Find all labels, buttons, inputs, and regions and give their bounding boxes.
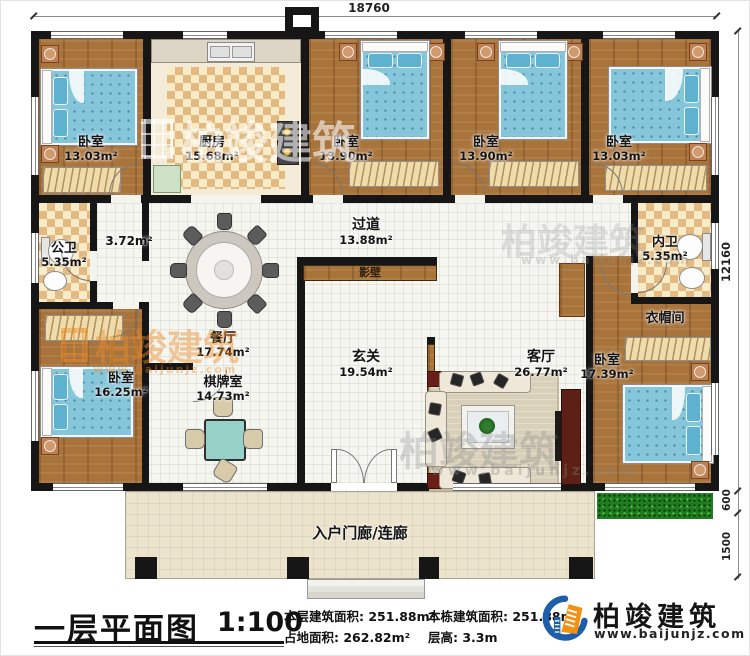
washbasin [43, 271, 67, 291]
entrance-steps [307, 579, 425, 599]
window [31, 97, 39, 175]
window [183, 483, 267, 491]
door-opening [113, 302, 139, 309]
pillow [53, 374, 68, 400]
room-name: 过道 [321, 217, 411, 234]
stove-burner [282, 127, 292, 137]
porch-pillar [287, 557, 309, 579]
room-area: 14.73m² [181, 390, 265, 404]
floor-plan-sheet: 18760 12160 600 1500 [0, 0, 750, 656]
watermark-url: www.baijunjz.com [431, 463, 638, 479]
room-area: 13.90m² [306, 150, 386, 164]
dimension-tick [713, 12, 720, 19]
label-screen-wall: 影壁 [303, 265, 437, 281]
stove-burner [282, 147, 292, 157]
chair [243, 429, 263, 449]
label-hall-area: 3.72m² [99, 234, 159, 248]
door-opening [593, 195, 623, 203]
room-name: 衣帽间 [623, 311, 707, 326]
title-block: 一层平面图 1:100 本层建筑面积: 251.88m² 占地面积: 262.8… [1, 601, 750, 656]
stat-floor-height: 层高: 3.3m [428, 627, 498, 648]
bed [623, 385, 713, 463]
cabinet [559, 263, 585, 317]
stat-label: 本栋建筑面积: [428, 609, 508, 624]
grass-strip [597, 493, 713, 519]
bed-headboard [700, 68, 710, 142]
window [53, 483, 123, 491]
wardrobe [45, 315, 123, 341]
bed-sheet [665, 68, 683, 101]
mahjong-table [204, 419, 246, 461]
window [325, 31, 397, 39]
bed [499, 41, 567, 139]
pillow [686, 393, 701, 422]
nightstand [691, 461, 709, 479]
watermark-url: www.baijunjz.com [521, 253, 692, 267]
entry-door-opening [331, 483, 397, 491]
room-area: 19.54m² [326, 366, 406, 380]
stat-value: 251.88m² [368, 609, 435, 624]
pillow [684, 107, 699, 135]
room-name: 玄关 [326, 349, 406, 366]
label-bedroom-top-left: 卧室 13.03m² [51, 135, 131, 164]
room-area: 13.90m² [446, 150, 526, 164]
label-public-bathroom: 公卫 5.35m² [35, 241, 93, 270]
window [711, 97, 719, 175]
dimension-line-right [738, 31, 739, 579]
stat-value: 262.82m² [343, 630, 410, 645]
stat-label: 层高: [428, 630, 458, 645]
window [465, 31, 537, 39]
label-porch: 入户门廊/连廊 [125, 525, 595, 543]
room-name: 入户门廊/连廊 [125, 525, 595, 543]
pillow [53, 77, 68, 105]
label-bedroom-top-right: 卧室 13.03m² [579, 135, 659, 164]
dining-table-center [214, 260, 234, 280]
cushion [428, 402, 442, 416]
window [51, 31, 123, 39]
label-cloakroom: 衣帽间 [623, 311, 707, 326]
nightstand [339, 43, 357, 61]
window [453, 483, 561, 491]
chair [217, 311, 232, 328]
brand-url: www.baijunjz.com [594, 626, 746, 641]
kitchen-sink [207, 42, 255, 62]
chair [170, 263, 187, 278]
bed-sheet [69, 70, 84, 103]
window [31, 371, 39, 441]
window [183, 31, 227, 39]
pillow [684, 75, 699, 103]
plant [479, 418, 495, 434]
stat-label: 占地面积: [284, 630, 339, 645]
label-chess-room: 棋牌室 14.73m² [181, 375, 265, 404]
bed-headboard [42, 368, 52, 436]
bed [361, 41, 429, 139]
chair [217, 213, 232, 230]
pillow [368, 53, 393, 68]
label-bedroom-top-3: 卧室 13.90m² [446, 135, 526, 164]
stat-footprint-area: 占地面积: 262.82m² [284, 627, 410, 648]
bed-headboard [42, 70, 52, 144]
bed-sheet [500, 69, 528, 85]
dimension-width-label: 18760 [321, 1, 417, 15]
stat-floor-area: 本层建筑面积: 251.88m² [284, 606, 435, 627]
chair [185, 429, 205, 449]
pillow [535, 53, 560, 68]
pillow [53, 404, 68, 430]
room-area: 17.74m² [183, 346, 263, 360]
bed-sheet [362, 69, 390, 85]
wardrobe [349, 161, 439, 187]
dimension-line-top [33, 16, 717, 17]
bed-headboard [500, 42, 566, 52]
tv [555, 411, 561, 461]
room-area: 13.03m² [51, 150, 131, 164]
nightstand [565, 43, 583, 61]
window [603, 31, 675, 39]
pillow [506, 53, 531, 68]
window [605, 483, 695, 491]
bed-headboard [362, 42, 428, 52]
dimension-porch-label: 1500 [721, 525, 733, 567]
room-area: 13.88m² [321, 234, 411, 248]
chair [262, 263, 279, 278]
toilet-tank [702, 233, 711, 261]
nightstand [41, 437, 59, 455]
brand-logo-icon [541, 592, 589, 648]
room-area: 17.39m² [565, 368, 649, 382]
label-kitchen: 厨房 15.68m² [172, 135, 252, 164]
porch-pillar [419, 557, 439, 579]
room-area: 13.03m² [579, 150, 659, 164]
room-area: 5.35m² [35, 256, 93, 270]
room-area: 16.25m² [79, 386, 163, 400]
pillow [397, 53, 422, 68]
bed-sheet [672, 386, 685, 420]
washbasin [679, 267, 705, 289]
door-opening [455, 195, 485, 203]
bed [609, 67, 711, 143]
nightstand [689, 43, 707, 61]
nightstand [689, 143, 707, 161]
bed [41, 69, 137, 145]
window [711, 223, 719, 269]
dimension-tick [734, 573, 741, 580]
screen-wall-cap [297, 257, 437, 265]
nightstand [691, 363, 709, 381]
window [711, 383, 719, 455]
room-area: 15.68m² [172, 150, 252, 164]
label-corridor: 过道 13.88m² [321, 217, 411, 247]
pillow [686, 426, 701, 455]
door-opening [313, 195, 343, 203]
nightstand [427, 43, 445, 61]
porch-pillar [135, 557, 157, 579]
room-area: 3.72m² [99, 234, 159, 248]
interior-wall [297, 257, 305, 483]
wardrobe [489, 161, 579, 187]
door-opening [631, 263, 638, 293]
porch-pillar [569, 557, 593, 579]
title-underline [34, 641, 284, 647]
interior-wall [142, 203, 149, 261]
door-opening [111, 195, 141, 203]
kitchen-tile [167, 67, 285, 189]
label-dining: 餐厅 17.74m² [183, 331, 263, 360]
pillow [53, 109, 68, 137]
nightstand [477, 43, 495, 61]
entry-door-leaf [391, 449, 397, 483]
dimension-height-label: 12160 [719, 226, 733, 298]
label-bedroom-right: 卧室 17.39m² [565, 353, 649, 382]
watermark-url: www.baijunjz.com [93, 363, 237, 376]
room-name: 影壁 [303, 265, 437, 281]
label-bedroom-top-2: 卧室 13.90m² [306, 135, 386, 164]
stat-value: 3.3m [462, 630, 497, 645]
nightstand [41, 45, 59, 63]
dimension-grass-label: 600 [721, 487, 733, 513]
label-foyer: 玄关 19.54m² [326, 349, 406, 379]
fridge [153, 165, 181, 193]
stat-label: 本层建筑面积: [284, 609, 364, 624]
interior-wall [427, 337, 435, 344]
door-opening [191, 195, 261, 203]
